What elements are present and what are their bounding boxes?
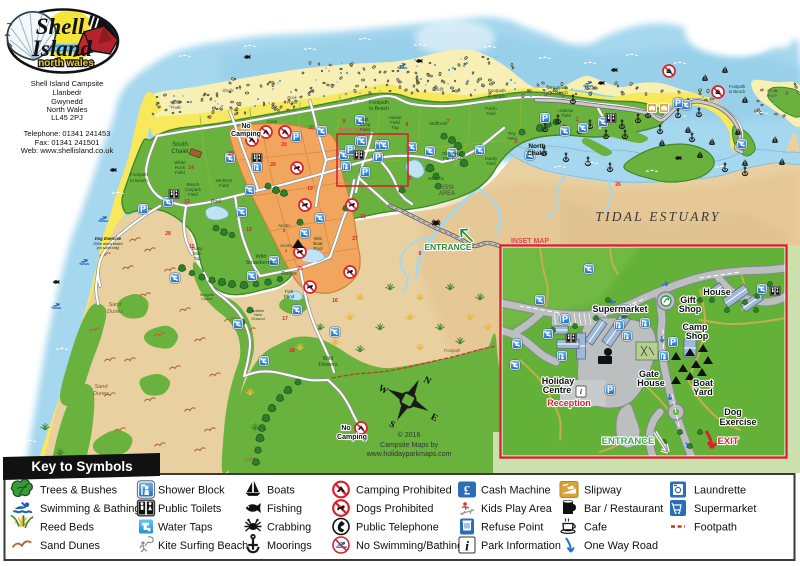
svg-text:Public Telephone: Public Telephone	[356, 522, 439, 534]
svg-text:Dogs Prohibited: Dogs Prohibited	[356, 503, 434, 515]
svg-text:9: 9	[343, 119, 346, 125]
svg-text:Shells: Shells	[432, 87, 444, 92]
svg-text:26: 26	[615, 182, 621, 188]
svg-text:13: 13	[184, 199, 190, 205]
svg-text:Centre: Centre	[543, 385, 572, 395]
svg-text:Shells: Shells	[584, 86, 596, 91]
svg-text:8: 8	[419, 251, 422, 257]
svg-text:Dog: Dog	[724, 407, 742, 417]
svg-text:27: 27	[352, 236, 358, 242]
svg-text:ENTRANCE: ENTRANCE	[424, 242, 472, 252]
svg-text:Camping Prohibited: Camping Prohibited	[356, 485, 452, 497]
svg-text:18: 18	[289, 348, 295, 354]
svg-text:House: House	[703, 287, 731, 297]
svg-text:Pools: Pools	[171, 105, 182, 110]
svg-text:Water Taps: Water Taps	[158, 522, 213, 534]
svg-text:29: 29	[228, 151, 234, 157]
svg-text:Web: www.shellisland.co.uk: Web: www.shellisland.co.uk	[21, 146, 114, 155]
svg-text:House: House	[637, 378, 665, 388]
svg-text:www.holidayparkmaps.com: www.holidayparkmaps.com	[366, 451, 452, 458]
svg-text:No: No	[241, 123, 250, 130]
svg-text:Field: Field	[175, 170, 185, 175]
svg-text:Boats: Boats	[267, 485, 295, 497]
svg-text:10: 10	[308, 125, 314, 131]
svg-text:Footpath: Footpath	[444, 348, 461, 353]
svg-text:Supermarket: Supermarket	[694, 503, 756, 515]
svg-text:Field: Field	[507, 136, 517, 141]
svg-text:Ground: Ground	[251, 316, 264, 321]
svg-text:Moorings: Moorings	[267, 540, 312, 552]
svg-text:Roses: Roses	[281, 271, 297, 277]
svg-text:20: 20	[270, 162, 276, 168]
svg-text:Pool: Pool	[211, 199, 221, 205]
svg-text:Kite Surfing Beach: Kite Surfing Beach	[158, 540, 248, 552]
svg-text:Crabbing: Crabbing	[267, 522, 311, 534]
svg-text:Pond: Pond	[284, 294, 295, 299]
svg-text:Refuse Point: Refuse Point	[481, 522, 543, 534]
svg-text:to Beach: to Beach	[488, 94, 506, 99]
svg-text:Dog Exercise: Dog Exercise	[95, 236, 122, 241]
svg-text:to Beach: to Beach	[729, 89, 746, 94]
svg-text:Top: Top	[194, 256, 201, 261]
svg-text:Key to Symbols: Key to Symbols	[31, 459, 132, 474]
svg-text:Swimming & Bathing: Swimming & Bathing	[40, 503, 140, 515]
svg-text:ENTRANCE: ENTRANCE	[602, 436, 655, 447]
svg-text:Bar / Restaurant: Bar / Restaurant	[584, 503, 663, 515]
svg-text:1: 1	[576, 117, 579, 123]
svg-text:Field: Field	[219, 183, 229, 188]
svg-text:Bottoms: Bottoms	[428, 176, 443, 181]
svg-text:31: 31	[360, 214, 366, 220]
svg-text:Camping: Camping	[337, 434, 367, 441]
svg-text:Field: Field	[360, 127, 370, 132]
svg-text:Slipway: Slipway	[584, 485, 622, 497]
svg-text:EXIT: EXIT	[717, 436, 738, 447]
svg-text:Laundrette: Laundrette	[694, 485, 746, 497]
svg-text:Sand Dunes: Sand Dunes	[40, 540, 100, 552]
svg-text:Sand: Sand	[95, 384, 109, 390]
svg-text:Cove: Cove	[267, 119, 278, 124]
svg-text:(on sand only): (on sand only)	[97, 246, 120, 250]
svg-text:Dunes: Dunes	[93, 391, 109, 397]
svg-text:Flowers: Flowers	[318, 362, 338, 368]
svg-text:South: South	[172, 142, 188, 148]
svg-text:Exercise: Exercise	[719, 417, 756, 427]
svg-text:Chalet: Chalet	[527, 150, 548, 157]
svg-text:Kids Play Area: Kids Play Area	[481, 503, 553, 515]
svg-text:TIDAL ESTUARY: TIDAL ESTUARY	[595, 209, 720, 224]
svg-text:12: 12	[246, 227, 252, 233]
svg-text:No Swimming/Bathing: No Swimming/Bathing	[356, 540, 463, 552]
svg-text:Staffords: Staffords	[429, 121, 448, 126]
svg-text:Cash Machine: Cash Machine	[481, 485, 551, 497]
svg-text:28: 28	[165, 231, 171, 237]
svg-text:Campsite Maps by: Campsite Maps by	[380, 442, 438, 449]
svg-text:Chalet: Chalet	[171, 149, 189, 155]
svg-text:Pools: Pools	[767, 93, 778, 98]
svg-text:i: i	[465, 540, 469, 555]
svg-text:17: 17	[282, 316, 288, 322]
svg-text:north wales: north wales	[38, 58, 94, 69]
svg-text:19: 19	[307, 186, 313, 192]
svg-text:INSET MAP: INSET MAP	[511, 238, 549, 245]
svg-text:Strawberries: Strawberries	[246, 260, 277, 266]
svg-text:Llanbedr: Llanbedr	[52, 88, 82, 97]
svg-text:Sand: Sand	[109, 302, 123, 308]
svg-text:LL45 2PJ: LL45 2PJ	[51, 113, 83, 122]
svg-text:Telephone: 01341 241453: Telephone: 01341 241453	[24, 129, 111, 138]
svg-text:Footpath: Footpath	[694, 522, 737, 534]
svg-text:Reception: Reception	[547, 398, 591, 408]
svg-text:One Way Road: One Way Road	[584, 540, 658, 552]
svg-text:5: 5	[409, 176, 412, 182]
svg-text:No: No	[341, 425, 350, 432]
svg-text:© 2016: © 2016	[398, 431, 421, 439]
svg-text:Fishing: Fishing	[267, 503, 302, 515]
svg-text:Shell Island Campsite: Shell Island Campsite	[31, 79, 104, 88]
svg-text:Pools: Pools	[287, 100, 298, 105]
svg-text:Dunes: Dunes	[107, 309, 123, 315]
svg-text:Trees & Bushes: Trees & Bushes	[40, 485, 118, 497]
svg-text:Park Information: Park Information	[481, 540, 561, 552]
svg-text:25: 25	[297, 266, 303, 272]
svg-text:Shop: Shop	[686, 331, 709, 341]
svg-text:14: 14	[188, 165, 194, 171]
svg-text:to Beach: to Beach	[130, 178, 148, 183]
svg-text:Field: Field	[486, 111, 496, 116]
svg-text:Yard: Yard	[693, 387, 713, 397]
svg-text:£: £	[464, 483, 471, 498]
svg-text:Supermarket: Supermarket	[592, 304, 647, 314]
svg-text:Cafe: Cafe	[584, 522, 607, 534]
svg-text:Field: Field	[188, 192, 198, 197]
svg-text:to Beach: to Beach	[369, 106, 389, 112]
svg-text:7: 7	[447, 119, 450, 125]
svg-text:8: 8	[406, 122, 409, 128]
svg-text:Camping: Camping	[231, 131, 261, 138]
svg-text:Public Toilets: Public Toilets	[158, 503, 222, 515]
svg-text:Footpath: Footpath	[488, 88, 506, 93]
svg-text:Reed Beds: Reed Beds	[40, 522, 94, 534]
svg-text:to Beach: to Beach	[550, 90, 568, 95]
svg-text:Footpath: Footpath	[130, 172, 148, 177]
svg-text:AREA: AREA	[439, 191, 455, 197]
svg-text:Top: Top	[391, 125, 399, 130]
svg-text:Shop: Shop	[679, 304, 702, 314]
svg-text:20: 20	[281, 142, 287, 148]
svg-text:Shower Block: Shower Block	[158, 485, 225, 497]
svg-text:16: 16	[332, 298, 338, 304]
svg-text:Pool: Pool	[313, 246, 322, 251]
svg-text:Shells: Shells	[222, 88, 234, 93]
svg-text:Pan Field: Pan Field	[443, 156, 461, 161]
svg-text:North: North	[528, 143, 545, 150]
svg-text:Corner: Corner	[201, 297, 213, 301]
svg-text:Field: Field	[561, 113, 571, 118]
svg-text:Field: Field	[486, 161, 496, 166]
svg-text:i: i	[580, 388, 582, 396]
